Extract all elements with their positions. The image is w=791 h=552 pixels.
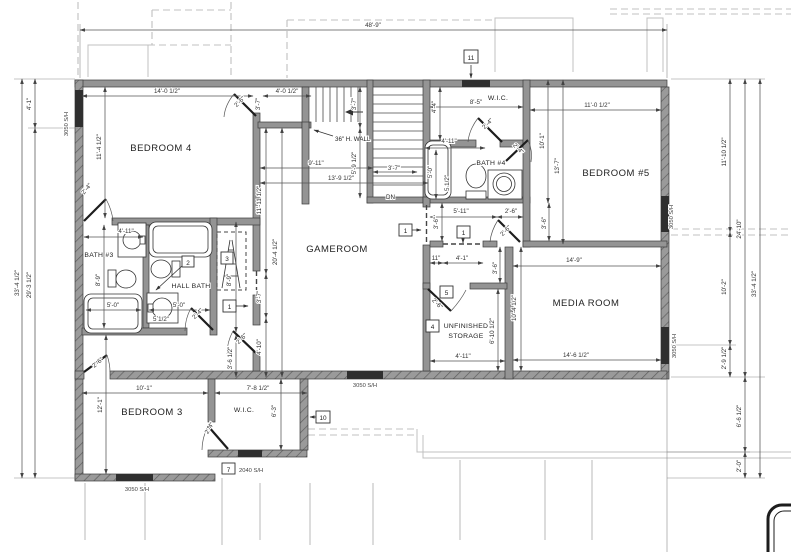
svg-text:11: 11 bbox=[468, 55, 475, 62]
svg-text:2: 2 bbox=[186, 260, 190, 267]
dim-hall-3-6-5: 3'-6 1/2" bbox=[227, 347, 234, 370]
svg-text:5: 5 bbox=[445, 290, 449, 297]
dim-left-29-3: 29'-3 1/2" bbox=[26, 272, 33, 298]
dim-hall-3-6-right: 3'-6" bbox=[541, 217, 548, 229]
dim-bedroom4-height: 11'-4 1/2" bbox=[96, 134, 103, 160]
room-label-bedroom3: BEDROOM 3 bbox=[121, 407, 183, 418]
dim-bedroom4-width: 14'-0 1/2" bbox=[154, 88, 180, 95]
dim-gameroom-13-9: 13'-9 1/2" bbox=[328, 175, 354, 182]
door-label-bedroom4: 2'-6" bbox=[233, 95, 247, 109]
dim-hallbath-5-0: 5'-0" bbox=[173, 302, 185, 309]
dim-closet-depth: 3'-7" bbox=[255, 98, 262, 110]
dim-right-11-10: 11'-10 1/2" bbox=[721, 137, 728, 166]
callout-1-gameroom: 1 bbox=[399, 224, 421, 236]
svg-text:4: 4 bbox=[431, 324, 435, 331]
dim-stair-lower: 3'-7" bbox=[388, 165, 400, 172]
stair-dn-label: DN bbox=[386, 194, 395, 201]
door-bath3 bbox=[84, 199, 113, 221]
dim-hall-8-9: 8'-9" bbox=[226, 274, 233, 286]
room-label-storage-1: UNFINISHED bbox=[444, 323, 489, 330]
callout-4: 4 bbox=[426, 320, 439, 332]
room-label-bedroom5: BEDROOM #5 bbox=[582, 168, 649, 179]
half-wall-note: 36" H. WALL bbox=[314, 130, 371, 143]
window-label-bedroom3: 3050 S/H bbox=[125, 487, 149, 493]
dim-storage-height: 6'-10 1/2" bbox=[489, 318, 496, 344]
callout-3: 3 bbox=[221, 252, 233, 264]
dim-media-height: 10'-4 1/2" bbox=[511, 295, 518, 321]
room-label-gameroom: GAMEROOM bbox=[306, 244, 368, 255]
dim-storage-width: 4'-11" bbox=[455, 353, 470, 360]
callout-11: 11 bbox=[464, 50, 478, 78]
room-label-bath4: BATH #4 bbox=[476, 160, 505, 167]
dim-media-bottom: 14'-6 1/2" bbox=[563, 352, 589, 359]
dim-right-10-2: 10'-2" bbox=[721, 279, 728, 295]
room-label-hallbath: HALL BATH bbox=[172, 283, 211, 290]
dim-bath4-5-0: 5'-0" bbox=[427, 166, 434, 178]
dim-right-24-10: 24'-10" bbox=[736, 219, 743, 238]
dim-left-4-1: 4'-1" bbox=[26, 98, 33, 110]
dim-overall-width: 48'-9" bbox=[365, 22, 381, 29]
dim-bath3-tub: 5'-0" bbox=[107, 302, 119, 309]
dim-bath3-4-11: 4'-11" bbox=[118, 228, 133, 235]
svg-text:7: 7 bbox=[227, 467, 231, 474]
dim-right-6-6: 6'-6 1/2" bbox=[736, 405, 743, 428]
dim-gameroom-9-11: 9'-11" bbox=[308, 160, 323, 167]
room-label-bath3: BATH #3 bbox=[84, 252, 113, 259]
window-label-gameroom: 3050 S/H bbox=[353, 383, 377, 389]
room-label-media: MEDIA ROOM bbox=[553, 298, 620, 309]
dim-bedroom5-10-1: 10'-1" bbox=[539, 133, 546, 149]
dim-wic-8-5: 8'-5" bbox=[470, 99, 482, 106]
dim-gameroom-20-4: 20'-4 1/2" bbox=[272, 239, 279, 265]
walls bbox=[75, 80, 669, 481]
room-label-storage-2: STORAGE bbox=[448, 333, 483, 340]
floor-plan: DN 36" H. WALL bbox=[0, 0, 791, 552]
dim-vest-3-6: 3'-6" bbox=[492, 262, 499, 274]
dim-b3wic-height: 6'-3" bbox=[271, 405, 278, 417]
dim-right-total: 33'-4 1/2" bbox=[751, 271, 758, 297]
door-label-storage: 2'-6" bbox=[430, 297, 444, 311]
hallbath-toilet bbox=[151, 260, 180, 278]
dim-hall-4-10: 4'-10" bbox=[256, 339, 263, 355]
dim-b3wic-width: 7'-8 1/2" bbox=[247, 385, 270, 392]
svg-text:10: 10 bbox=[319, 415, 327, 422]
adjacent-drawing-corner bbox=[768, 505, 791, 552]
callout-7: 7 bbox=[222, 463, 235, 474]
window-label-right-upper: 3050 S/H bbox=[669, 205, 675, 229]
dim-wic-4-4: 4'-4" bbox=[431, 101, 438, 113]
svg-text:1: 1 bbox=[462, 230, 466, 237]
bath3-tub bbox=[84, 294, 142, 333]
dim-bath4-5half: 5 1/2" bbox=[444, 175, 451, 191]
dim-stair-width: 3'-7" bbox=[351, 98, 358, 110]
window-label-b3wic: 2040 S/H bbox=[239, 468, 263, 474]
dim-hall-5-11: 5'-11" bbox=[453, 208, 468, 215]
bath3-toilet bbox=[108, 270, 136, 288]
dim-bedroom3-width: 10'-1" bbox=[136, 385, 152, 392]
half-wall-label: 36" H. WALL bbox=[335, 136, 371, 143]
dim-left-total: 33'-4 1/2" bbox=[14, 270, 21, 296]
room-label-wic-bedroom3: W.I.C. bbox=[234, 407, 254, 414]
callout-1-west-hall: 1 bbox=[223, 300, 248, 312]
room-label-wic-top: W.I.C. bbox=[488, 95, 508, 102]
door-label-bedroom5: 2'-6" bbox=[499, 224, 513, 238]
bath4-toilet bbox=[466, 164, 486, 199]
dim-media-top: 14'-9" bbox=[566, 257, 582, 264]
window-label-left: 3050 S/H bbox=[64, 112, 70, 136]
dim-hallbath-5half: 5 1/2" bbox=[153, 316, 169, 323]
dim-bedroom5-width: 11'-0 1/2" bbox=[584, 102, 610, 109]
dim-gameroom-11-11: 11'-11 1/2" bbox=[256, 186, 263, 215]
svg-text:3: 3 bbox=[225, 256, 229, 263]
dim-bedroom5-13-7: 13'-7" bbox=[554, 158, 561, 174]
svg-text:1: 1 bbox=[228, 304, 232, 311]
dim-closet-width: 4'-0 1/2" bbox=[276, 88, 299, 95]
cased-openings bbox=[257, 205, 484, 296]
dim-vest-11: 11" bbox=[432, 255, 441, 262]
callout-10: 10 bbox=[310, 411, 330, 423]
room-label-bedroom4: BEDROOM 4 bbox=[130, 143, 192, 154]
dim-bedroom3-height: 12'-1" bbox=[97, 397, 104, 413]
dim-bath3-8-9: 8'-9" bbox=[95, 274, 102, 286]
dim-right-2-0: 2'-0" bbox=[736, 460, 743, 472]
callout-1-hall: 1 bbox=[457, 226, 470, 243]
dim-right-2-9: 2'-9 1/2" bbox=[721, 347, 728, 370]
callout-5: 5 bbox=[440, 286, 453, 298]
svg-text:1: 1 bbox=[404, 228, 408, 235]
dim-hall-3-6-left: 3'-6" bbox=[433, 217, 440, 229]
dim-hall-3-7: 3'-7" bbox=[256, 291, 263, 303]
dim-stair-run: 5'-9 1/2" bbox=[351, 152, 358, 175]
door-label-wictop: 2'-4" bbox=[481, 117, 495, 131]
dim-vest-4-1: 4'-1" bbox=[456, 255, 468, 262]
hallbath-tub bbox=[149, 222, 212, 257]
dim-hall-door-2-6: 2'-6" bbox=[505, 208, 517, 215]
dim-bath4-4-11: 4'-11" bbox=[441, 138, 456, 145]
floor-plan-drawing: DN 36" H. WALL bbox=[0, 0, 791, 552]
bath4-vanity-sink bbox=[488, 170, 522, 199]
window-label-right-lower: 3050 S/H bbox=[672, 334, 678, 358]
